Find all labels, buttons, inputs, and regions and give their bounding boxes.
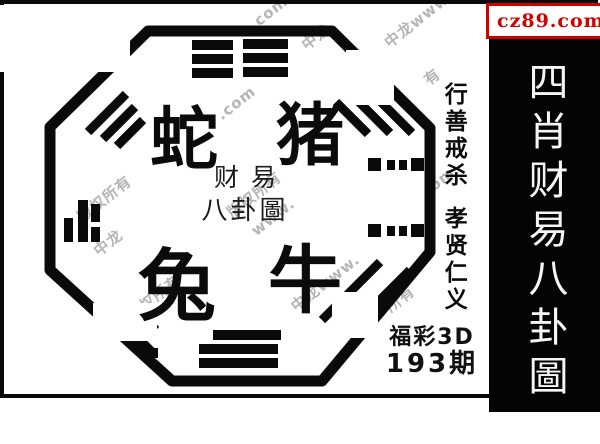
trigram-right	[368, 158, 424, 237]
zodiac-rabbit: 兔	[138, 248, 216, 326]
motto-column: 行善戒杀 孝贤仁义	[441, 82, 466, 314]
sidebar-title-strip: 四肖财易八卦圖	[489, 27, 600, 412]
seal-line-1: 财易	[193, 162, 297, 195]
game-name: 福彩3D	[383, 325, 481, 350]
site-url[interactable]: cz89.com	[497, 10, 600, 32]
trigram-left	[64, 200, 100, 242]
center-seal: 财易 八卦圖	[193, 162, 297, 228]
trigram-top	[192, 39, 288, 78]
motto-line-2: 孝贤仁义	[441, 206, 466, 314]
site-logo[interactable]: cz89.com	[486, 3, 600, 39]
zodiac-ox: 牛	[268, 244, 342, 318]
trigram-top-left	[88, 94, 143, 146]
trigram-bottom-left-dot	[148, 348, 158, 358]
motto-line-1: 行善戒杀	[441, 82, 466, 190]
chart-title-vertical: 四肖财易八卦圖	[525, 61, 565, 412]
trigram-bottom	[199, 330, 281, 368]
seal-line-2: 八卦圖	[193, 195, 297, 229]
zodiac-pig: 猪	[276, 102, 344, 170]
period-number: 193期	[383, 350, 481, 380]
bagua-chart-page: .com 中龙 中龙www 有 版权所有 中龙 版权所有 www. 权所有 中龙…	[0, 0, 600, 444]
issue-label: 福彩3D 193期	[383, 325, 481, 380]
